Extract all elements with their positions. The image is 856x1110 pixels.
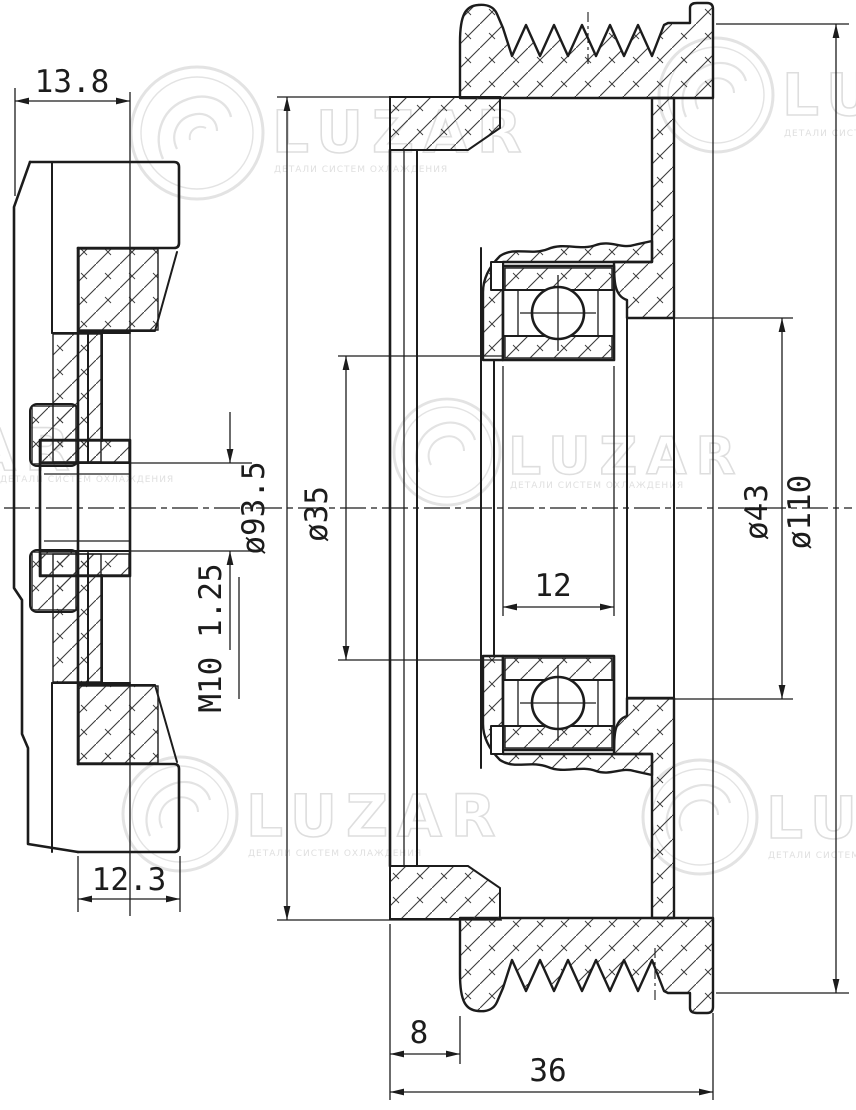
watermark-subtitle-text: ДЕТАЛИ СИСТЕМ ОХЛАЖДЕНИЯ (510, 481, 684, 491)
dimension-overall-width: 36 (390, 1013, 713, 1100)
cover-lip-bottom (390, 866, 500, 919)
technical-drawing-page: LUZAR ДЕТАЛИ СИСТЕМ ОХЛАЖДЕНИЯ LUZAR ДЕТ… (0, 0, 856, 1110)
dimension-bearing-width: 12 (503, 366, 614, 616)
dim-label-thread: M10 1.25 (193, 563, 229, 712)
pulley-technical-drawing: LUZAR ДЕТАЛИ СИСТЕМ ОХЛАЖДЕНИЯ LUZAR ДЕТ… (0, 0, 856, 1110)
hub-section-top-right (614, 98, 674, 318)
dimension-top-width: 13.8 (15, 64, 130, 196)
side-view (14, 92, 179, 916)
dim-label-outer-diameter: ø110 (782, 475, 818, 550)
rim-section-bottom (460, 918, 713, 1013)
bearing-bottom (491, 656, 614, 754)
watermark-brand-text: LUZAR (782, 61, 856, 129)
watermark-subtitle-text: ДЕТАЛИ СИСТЕМ ОХЛАЖДЕНИЯ (768, 851, 856, 861)
watermark-subtitle-text: ДЕТАЛИ СИСТЕМ ОХЛАЖДЕНИЯ (248, 849, 422, 859)
snap-ring-groove-top (491, 262, 503, 290)
dim-label-bearing-width: 12 (534, 568, 571, 604)
dim-label-cover-diameter: ø93.5 (236, 461, 272, 554)
dimension-cover-offset: 8 (390, 924, 460, 1064)
dim-label-top-width: 13.8 (35, 64, 110, 100)
bearing-top (491, 262, 614, 360)
dimension-bottom-width: 12.3 (78, 856, 180, 912)
dim-label-bottom-width: 12.3 (92, 862, 167, 898)
watermark-brand-text: LUZAR (246, 782, 505, 850)
watermark-center: LUZAR ДЕТАЛИ СИСТЕМ ОХЛАЖДЕНИЯ (394, 399, 745, 505)
watermark-subtitle-text: ДЕТАЛИ СИСТЕМ ОХЛАЖДЕНИЯ (784, 129, 856, 139)
dim-label-hub-diameter: ø43 (739, 484, 775, 540)
dim-label-cover-offset: 8 (410, 1015, 429, 1051)
watermark-subtitle-text: ДЕТАЛИ СИСТЕМ ОХЛАЖДЕНИЯ (274, 165, 448, 175)
rim-section-top (460, 3, 713, 98)
dimension-thread: M10 1.25 (130, 412, 252, 713)
watermark-brand-text: LUZAR (766, 784, 856, 852)
snap-ring-groove-bottom (491, 726, 503, 754)
dim-label-overall-width: 36 (529, 1053, 566, 1089)
watermark-subtitle-text: ДЕТАЛИ СИСТЕМ ОХЛАЖДЕНИЯ (0, 475, 174, 485)
dim-label-seat-diameter: ø35 (299, 486, 335, 542)
